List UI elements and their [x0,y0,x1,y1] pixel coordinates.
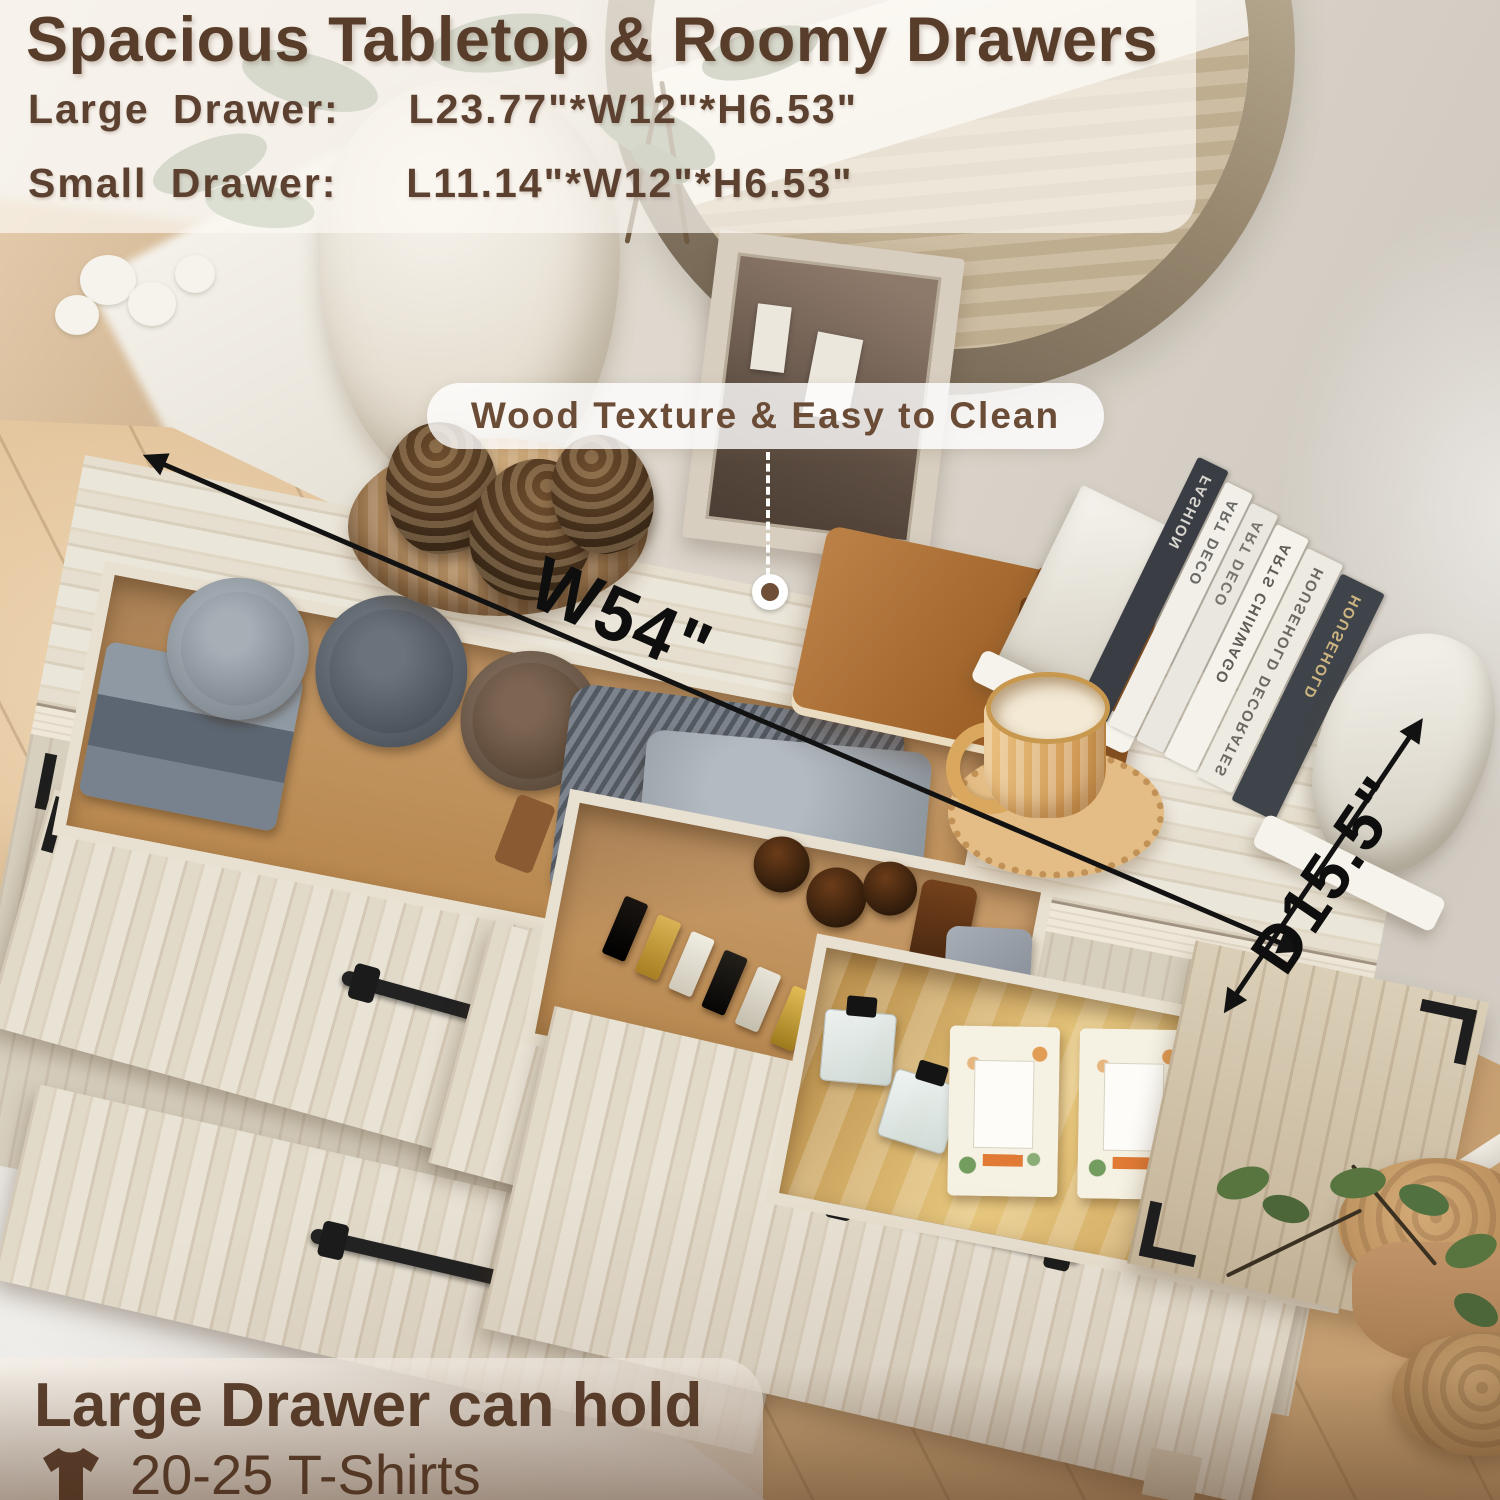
mug-opening [986,672,1110,744]
callout-pointer-line [766,452,770,576]
spec-value: L11.14"*W12"*H6.53" [406,160,853,206]
wood-divider-block [493,793,556,875]
coffee-mug [984,698,1106,818]
product-infographic: FASHION ART DECO ART DECO ARTS CHINWAGO … [0,0,1500,1500]
perfume-bottle [819,1008,897,1086]
corner-bracket-icon [1139,1201,1205,1267]
callout-pointer-dot [752,574,788,610]
spec-label: Large Drawer: [28,86,340,132]
small-drawer-spec: Small Drawer: L11.14"*W12"*H6.53" [28,160,854,207]
dresser-foot [1142,1447,1203,1500]
t-shirt-icon [38,1447,104,1500]
page-title: Spacious Tabletop & Roomy Drawers [26,4,1158,76]
corner-bracket-icon [1411,999,1477,1065]
amber-bottle [858,857,921,920]
capacity-text: 20-25 T-Shirts [130,1442,481,1500]
footer-title: Large Drawer can hold [34,1370,702,1441]
large-drawer-spec: Large Drawer: L23.77"*W12"*H6.53" [28,86,858,133]
aromatherapy-box [947,1025,1060,1197]
white-blossom [128,282,176,326]
frame-photo-detail [750,303,792,373]
capacity-row: 20-25 T-Shirts [38,1442,481,1500]
lipstick [734,966,781,1033]
callout-text: Wood Texture & Easy to Clean [471,395,1060,437]
white-blossom [55,295,99,335]
amber-bottle [749,832,815,898]
spec-value: L23.77"*W12"*H6.53" [409,86,859,132]
wood-texture-callout: Wood Texture & Easy to Clean [427,383,1104,449]
spec-label: Small Drawer: [28,160,337,206]
amber-bottle [801,862,871,932]
white-blossom [175,255,215,293]
